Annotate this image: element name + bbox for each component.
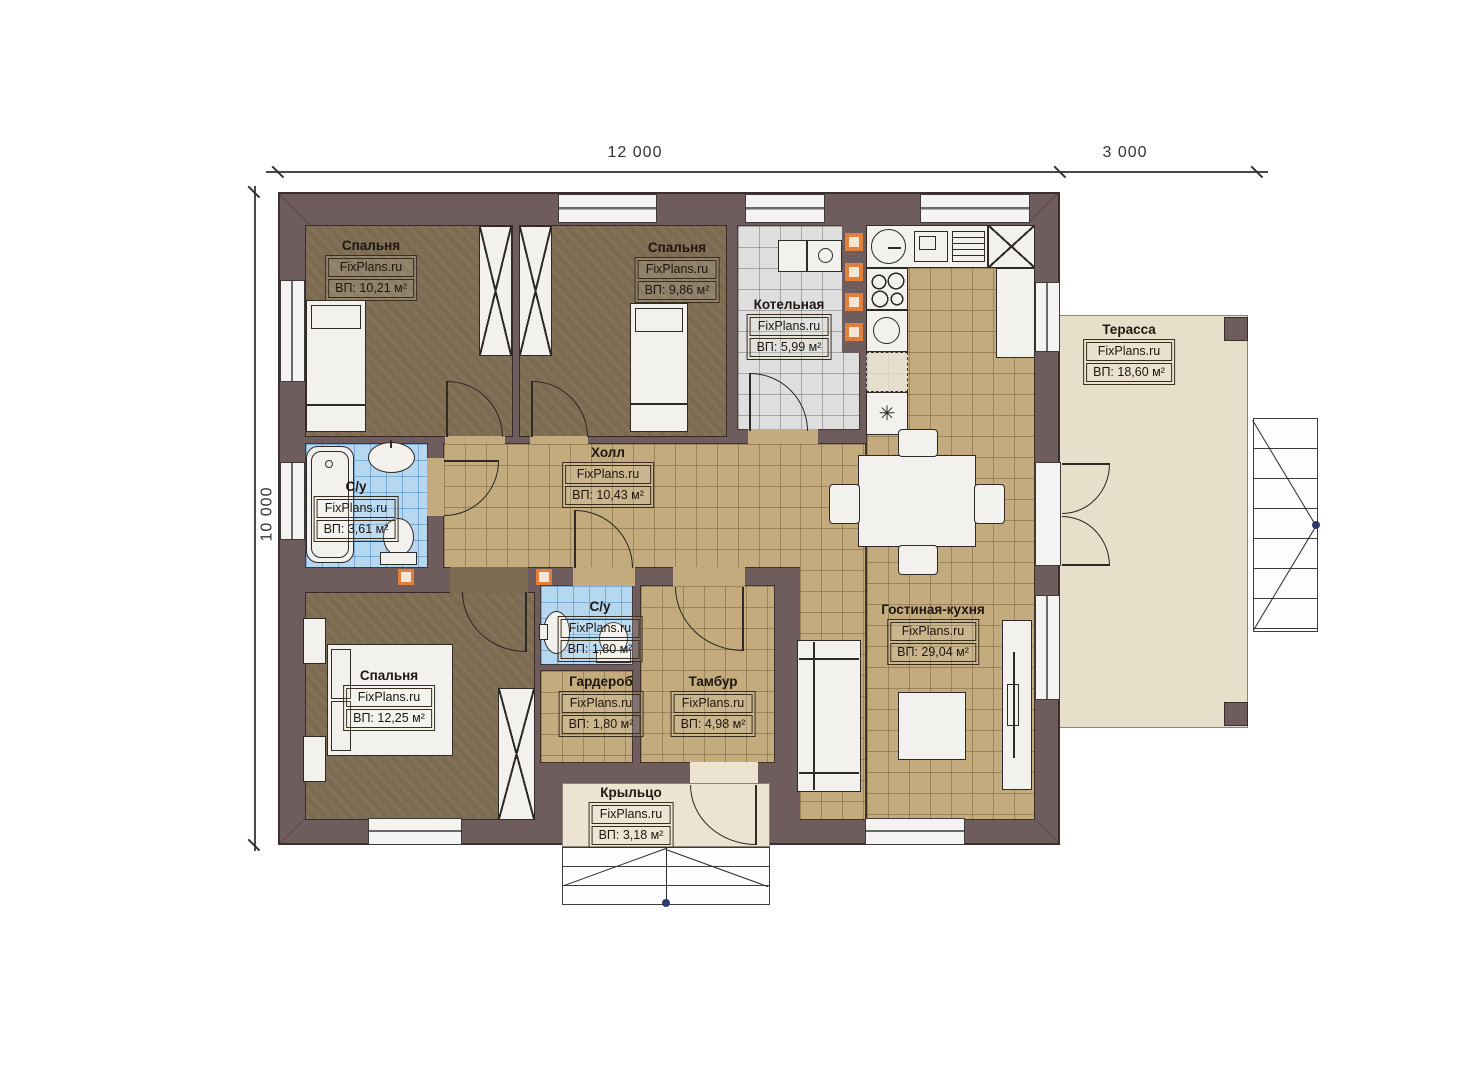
wardrobe-cabinet bbox=[498, 688, 535, 820]
room-label-bathroom1: С/у FixPlans.ru ВП: 3,61 м² bbox=[314, 479, 399, 542]
room-label-wardrobe: Гардероб FixPlans.ru ВП: 1,80 м² bbox=[559, 674, 644, 737]
nightstand bbox=[303, 736, 326, 782]
bathtub-drain bbox=[325, 460, 333, 468]
brand-watermark: FixPlans.ru bbox=[674, 694, 753, 713]
terrace-stairs bbox=[1253, 418, 1318, 632]
sofa-back-line bbox=[813, 642, 815, 790]
stove bbox=[866, 268, 908, 310]
window bbox=[558, 194, 657, 223]
door-leaf bbox=[574, 510, 576, 568]
door-leaf bbox=[1062, 564, 1110, 566]
window bbox=[280, 280, 305, 382]
room-area: ВП: 4,98 м² bbox=[674, 715, 753, 734]
door-leaf bbox=[446, 381, 448, 437]
room-label-vestibule: Тамбур FixPlans.ru ВП: 4,98 м² bbox=[671, 674, 756, 737]
door-leaf bbox=[444, 460, 499, 462]
room-label-hall: Холл FixPlans.ru ВП: 10,43 м² bbox=[562, 445, 654, 508]
room-label-porch: Крыльцо FixPlans.ru ВП: 3,18 м² bbox=[589, 785, 674, 848]
room-area: ВП: 18,60 м² bbox=[1086, 363, 1172, 382]
room-label-bedroom2: Спальня FixPlans.ru ВП: 9,86 м² bbox=[635, 240, 720, 303]
brand-watermark: FixPlans.ru bbox=[638, 260, 717, 279]
brand-watermark: FixPlans.ru bbox=[592, 805, 671, 824]
bed-pillow bbox=[635, 308, 683, 332]
door-opening bbox=[690, 762, 758, 784]
room-name: Терасса bbox=[1102, 322, 1156, 337]
dimension-line-top bbox=[266, 171, 1268, 173]
door-opening bbox=[530, 436, 588, 444]
door-opening bbox=[573, 567, 635, 586]
sink-faucet bbox=[888, 247, 901, 249]
brand-watermark: FixPlans.ru bbox=[565, 465, 651, 484]
room-info-box: FixPlans.ru ВП: 12,25 м² bbox=[343, 685, 435, 731]
vent-flue bbox=[845, 263, 863, 281]
room-area: ВП: 5,99 м² bbox=[750, 338, 829, 357]
dimension-right-label: 3 000 bbox=[1102, 144, 1147, 162]
window bbox=[745, 194, 825, 223]
brand-watermark: FixPlans.ru bbox=[750, 317, 829, 336]
room-info-box: FixPlans.ru ВП: 3,61 м² bbox=[314, 496, 399, 542]
room-info-box: FixPlans.ru ВП: 18,60 м² bbox=[1083, 339, 1175, 385]
room-area: ВП: 3,61 м² bbox=[317, 520, 396, 539]
room-area: ВП: 10,21 м² bbox=[328, 279, 414, 298]
chair bbox=[898, 429, 938, 457]
nightstand bbox=[303, 618, 326, 664]
chair bbox=[898, 545, 938, 575]
room-area: ВП: 3,18 м² bbox=[592, 826, 671, 845]
sofa bbox=[797, 640, 861, 792]
room-info-box: FixPlans.ru ВП: 1,80 м² bbox=[559, 691, 644, 737]
boiler-dial bbox=[818, 248, 833, 263]
window bbox=[1035, 595, 1060, 700]
room-label-terrace: Терасса FixPlans.ru ВП: 18,60 м² bbox=[1083, 322, 1175, 385]
room-label-bathroom2: С/у FixPlans.ru ВП: 1,80 м² bbox=[558, 599, 643, 662]
door-opening bbox=[450, 567, 528, 593]
wardrobe-cabinet bbox=[479, 226, 512, 356]
room-area: ВП: 10,43 м² bbox=[565, 486, 651, 505]
room-name: Котельная bbox=[754, 297, 825, 312]
room-name: Гардероб bbox=[569, 674, 633, 689]
room-area: ВП: 1,80 м² bbox=[562, 715, 641, 734]
room-info-box: FixPlans.ru ВП: 9,86 м² bbox=[635, 257, 720, 303]
door-leaf bbox=[749, 373, 751, 431]
door-leaf bbox=[755, 785, 757, 845]
room-name: Спальня bbox=[342, 238, 400, 253]
room-area: ВП: 12,25 м² bbox=[346, 709, 432, 728]
terrace-post bbox=[1224, 702, 1248, 726]
sofa-armrest-line bbox=[799, 772, 859, 774]
door-leaf bbox=[525, 592, 527, 652]
room-label-boiler: Котельная FixPlans.ru ВП: 5,99 м² bbox=[747, 297, 832, 360]
window bbox=[865, 818, 965, 845]
door-opening bbox=[445, 436, 505, 444]
dimension-left-label: 10 000 bbox=[258, 487, 276, 542]
room-area: ВП: 29,04 м² bbox=[890, 643, 976, 662]
room-name: Крыльцо bbox=[600, 785, 661, 800]
dimension-top-label: 12 000 bbox=[608, 144, 663, 162]
door-opening bbox=[427, 458, 444, 516]
sofa-armrest-line bbox=[799, 658, 859, 660]
vent-flue bbox=[845, 233, 863, 251]
window bbox=[1035, 282, 1060, 352]
room-name: Спальня bbox=[648, 240, 706, 255]
room-name: С/у bbox=[589, 599, 610, 614]
washbasin bbox=[368, 442, 415, 473]
vent-flue bbox=[845, 323, 863, 341]
room-name: Тамбур bbox=[689, 674, 738, 689]
tall-cabinet bbox=[996, 268, 1035, 358]
room-name: Гостиная-кухня bbox=[881, 602, 984, 617]
wall-vent bbox=[536, 569, 552, 585]
room-name: Спальня bbox=[360, 668, 418, 683]
door-leaf bbox=[531, 381, 533, 437]
room-info-box: FixPlans.ru ВП: 4,98 м² bbox=[671, 691, 756, 737]
room-name: Холл bbox=[591, 445, 625, 460]
room-name: С/у bbox=[345, 479, 366, 494]
basin-pedestal bbox=[539, 624, 548, 640]
fridge bbox=[988, 225, 1035, 268]
room-info-box: FixPlans.ru ВП: 29,04 м² bbox=[887, 619, 979, 665]
terrace-door-opening bbox=[1035, 462, 1061, 566]
room-label-bedroom3: Спальня FixPlans.ru ВП: 12,25 м² bbox=[343, 668, 435, 731]
room-label-living-kitchen: Гостиная-кухня FixPlans.ru ВП: 29,04 м² bbox=[881, 602, 984, 665]
bed-fold-line bbox=[630, 403, 688, 405]
brand-watermark: FixPlans.ru bbox=[562, 694, 641, 713]
room-area: ВП: 1,80 м² bbox=[561, 640, 640, 659]
brand-watermark: FixPlans.ru bbox=[317, 499, 396, 518]
brand-watermark: FixPlans.ru bbox=[328, 258, 414, 277]
boiler-unit-divider bbox=[806, 240, 808, 272]
door-leaf bbox=[742, 587, 744, 651]
window bbox=[368, 818, 462, 845]
drainboard bbox=[952, 231, 985, 262]
bed-fold-line bbox=[306, 404, 366, 406]
room-info-box: FixPlans.ru ВП: 3,18 м² bbox=[589, 802, 674, 848]
brand-watermark: FixPlans.ru bbox=[346, 688, 432, 707]
brand-watermark: FixPlans.ru bbox=[1086, 342, 1172, 361]
room-info-box: FixPlans.ru ВП: 5,99 м² bbox=[747, 314, 832, 360]
sink-basin bbox=[919, 236, 936, 250]
dining-table bbox=[858, 455, 976, 547]
basin-faucet bbox=[390, 440, 392, 448]
door-opening bbox=[748, 429, 818, 444]
steps-center-line bbox=[666, 847, 667, 905]
window bbox=[280, 462, 305, 540]
door-opening bbox=[673, 567, 745, 586]
coffee-table bbox=[898, 692, 966, 760]
wardrobe-cabinet bbox=[519, 226, 552, 356]
stairs-node-dot bbox=[1312, 521, 1320, 529]
room-label-bedroom1: Спальня FixPlans.ru ВП: 10,21 м² bbox=[325, 238, 417, 301]
room-info-box: FixPlans.ru ВП: 10,21 м² bbox=[325, 255, 417, 301]
chair bbox=[974, 484, 1005, 524]
brand-watermark: FixPlans.ru bbox=[890, 622, 976, 641]
room-area: ВП: 9,86 м² bbox=[638, 281, 717, 300]
floor-plan: 12 000 3 000 10 000 bbox=[0, 0, 1473, 1080]
door-leaf bbox=[1062, 463, 1110, 465]
washing-machine-drum bbox=[873, 317, 900, 344]
window bbox=[920, 194, 1030, 223]
chair bbox=[829, 484, 860, 524]
dimension-line-left bbox=[254, 186, 256, 851]
tv-bracket bbox=[1007, 684, 1019, 726]
upper-cabinet-dashed bbox=[866, 352, 908, 392]
vent-flue bbox=[845, 293, 863, 311]
steps-node-dot bbox=[662, 899, 670, 907]
room-info-box: FixPlans.ru ВП: 1,80 м² bbox=[558, 616, 643, 662]
terrace-post bbox=[1224, 317, 1248, 341]
wall-vent bbox=[398, 569, 414, 585]
bed-pillow bbox=[311, 305, 361, 329]
toilet-tank bbox=[380, 552, 417, 565]
room-info-box: FixPlans.ru ВП: 10,43 м² bbox=[562, 462, 654, 508]
brand-watermark: FixPlans.ru bbox=[561, 619, 640, 638]
